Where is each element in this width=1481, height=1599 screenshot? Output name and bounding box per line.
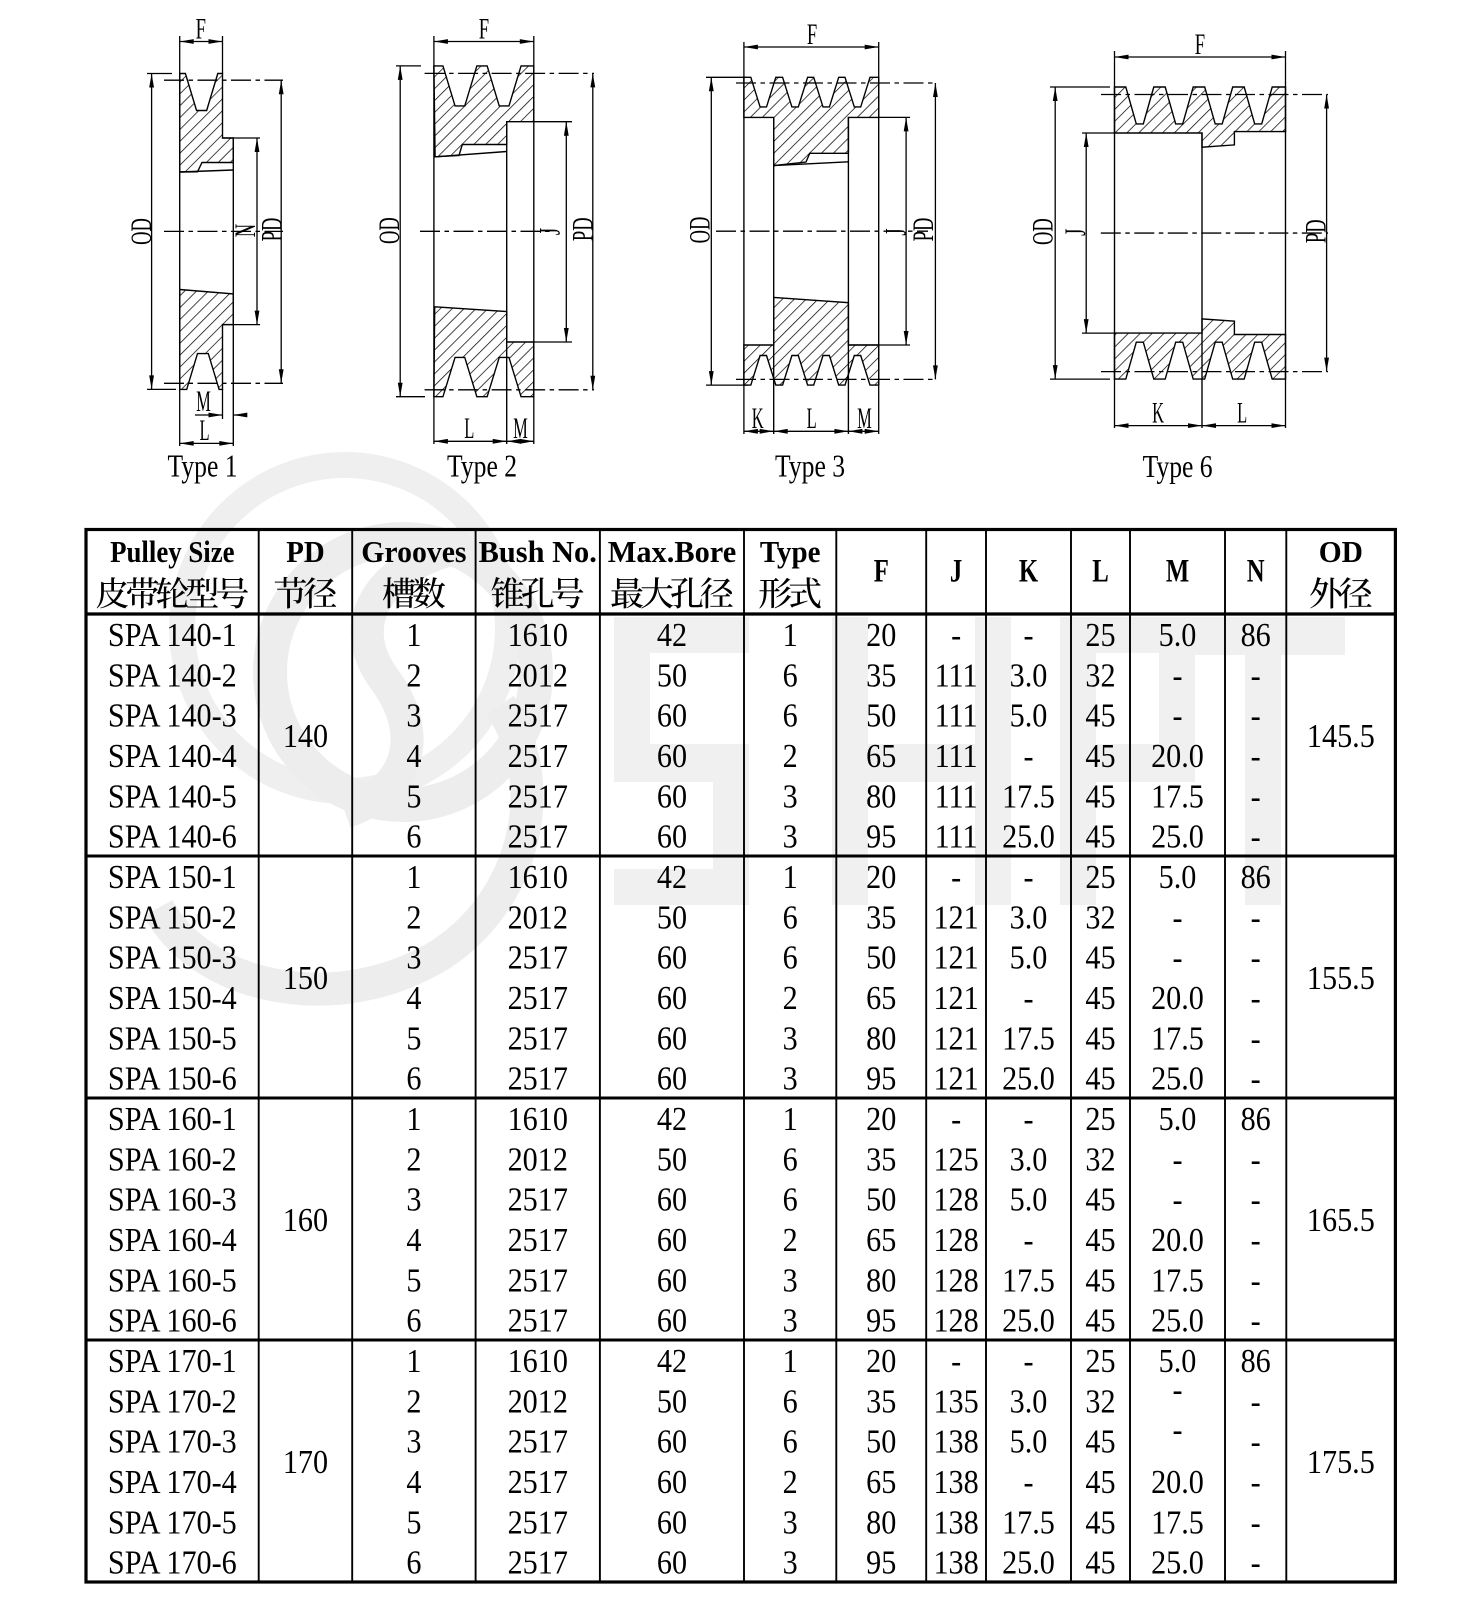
svg-text:-: -	[951, 857, 961, 895]
svg-text:SPA 150-6: SPA 150-6	[108, 1059, 237, 1097]
svg-text:5.0: 5.0	[1010, 1422, 1048, 1460]
svg-text:2517: 2517	[508, 1422, 568, 1460]
svg-text:OD: OD	[1319, 534, 1363, 569]
svg-text:Type: Type	[760, 535, 821, 569]
svg-text:4: 4	[406, 1462, 421, 1500]
svg-text:111: 111	[935, 817, 978, 855]
svg-text:2517: 2517	[508, 1019, 568, 1057]
svg-text:2517: 2517	[508, 696, 568, 734]
svg-text:PD: PD	[908, 218, 940, 242]
svg-text:-: -	[1172, 1140, 1182, 1178]
svg-text:Max.Bore: Max.Bore	[608, 535, 737, 569]
svg-text:4: 4	[406, 736, 421, 774]
svg-text:-: -	[1251, 1059, 1261, 1097]
svg-text:-: -	[1023, 1462, 1033, 1500]
svg-text:170: 170	[283, 1442, 328, 1480]
svg-text:17.5: 17.5	[1151, 1261, 1204, 1299]
svg-text:-: -	[1023, 978, 1033, 1016]
svg-text:-: -	[1023, 615, 1033, 653]
svg-text:3: 3	[406, 938, 421, 976]
svg-text:95: 95	[866, 1059, 896, 1097]
svg-text:5.0: 5.0	[1010, 696, 1048, 734]
svg-text:2012: 2012	[508, 1382, 568, 1420]
svg-text:-: -	[1251, 777, 1261, 815]
svg-text:32: 32	[1085, 1382, 1115, 1420]
svg-text:-: -	[1251, 696, 1261, 734]
svg-text:2517: 2517	[508, 1180, 568, 1218]
svg-text:35: 35	[866, 656, 896, 694]
svg-text:1: 1	[406, 615, 421, 653]
svg-text:-: -	[1251, 1462, 1261, 1500]
svg-text:-: -	[1251, 1180, 1261, 1218]
svg-text:2517: 2517	[508, 1462, 568, 1500]
svg-text:45: 45	[1085, 696, 1115, 734]
svg-text:-: -	[1251, 1301, 1261, 1339]
svg-text:80: 80	[866, 1019, 896, 1057]
svg-text:25.0: 25.0	[1151, 1301, 1204, 1339]
svg-text:SPA 140-4: SPA 140-4	[108, 736, 237, 774]
svg-text:3.0: 3.0	[1010, 1140, 1048, 1178]
svg-text:-: -	[951, 1341, 961, 1379]
svg-text:-: -	[1251, 898, 1261, 936]
svg-text:60: 60	[657, 1059, 687, 1097]
svg-text:3.0: 3.0	[1010, 898, 1048, 936]
svg-text:2517: 2517	[508, 777, 568, 815]
svg-text:3: 3	[783, 1301, 798, 1339]
svg-text:K: K	[1152, 396, 1164, 429]
svg-text:150: 150	[283, 958, 328, 996]
svg-text:138: 138	[933, 1422, 978, 1460]
svg-text:35: 35	[866, 1382, 896, 1420]
svg-text:86: 86	[1241, 1099, 1271, 1137]
svg-text:OD: OD	[684, 217, 716, 244]
svg-text:-: -	[1251, 656, 1261, 694]
svg-text:3: 3	[406, 696, 421, 734]
svg-text:3: 3	[783, 1059, 798, 1097]
svg-text:SPA 170-2: SPA 170-2	[108, 1382, 237, 1420]
svg-text:2517: 2517	[508, 1059, 568, 1097]
svg-text:175.5: 175.5	[1307, 1442, 1375, 1480]
svg-text:3: 3	[783, 1261, 798, 1299]
svg-text:1: 1	[406, 1099, 421, 1137]
svg-text:1610: 1610	[508, 1341, 568, 1379]
svg-text:SPA 160-2: SPA 160-2	[108, 1140, 237, 1178]
svg-text:6: 6	[783, 938, 798, 976]
svg-text:1: 1	[406, 857, 421, 895]
svg-text:45: 45	[1085, 777, 1115, 815]
svg-text:60: 60	[657, 1422, 687, 1460]
svg-text:3: 3	[783, 1543, 798, 1581]
svg-text:95: 95	[866, 1543, 896, 1581]
svg-text:M: M	[1166, 553, 1189, 589]
svg-text:1: 1	[783, 615, 798, 653]
svg-text:5.0: 5.0	[1159, 1099, 1197, 1137]
svg-text:50: 50	[866, 938, 896, 976]
svg-text:25.0: 25.0	[1002, 1543, 1055, 1581]
svg-text:-: -	[1172, 656, 1182, 694]
svg-text:3: 3	[783, 1019, 798, 1057]
svg-text:-: -	[1023, 1341, 1033, 1379]
svg-text:2517: 2517	[508, 736, 568, 774]
svg-text:1610: 1610	[508, 857, 568, 895]
svg-text:-: -	[1172, 938, 1182, 976]
svg-text:OD: OD	[126, 218, 158, 245]
svg-text:80: 80	[866, 1503, 896, 1541]
svg-text:-: -	[1251, 1422, 1261, 1460]
svg-text:2517: 2517	[508, 1543, 568, 1581]
svg-text:128: 128	[933, 1301, 978, 1339]
svg-text:6: 6	[406, 817, 421, 855]
svg-text:60: 60	[657, 1220, 687, 1258]
svg-text:3: 3	[406, 1422, 421, 1460]
svg-text:25.0: 25.0	[1002, 1301, 1055, 1339]
svg-text:SPA 170-1: SPA 170-1	[108, 1341, 237, 1379]
svg-text:2: 2	[406, 898, 421, 936]
svg-text:SPA 150-5: SPA 150-5	[108, 1019, 237, 1057]
svg-text:125: 125	[933, 1140, 978, 1178]
svg-text:SPA 140-1: SPA 140-1	[108, 615, 237, 653]
svg-text:2: 2	[406, 1382, 421, 1420]
svg-text:Bush No.: Bush No.	[479, 535, 597, 569]
svg-text:2517: 2517	[508, 1503, 568, 1541]
svg-text:145.5: 145.5	[1307, 716, 1375, 754]
svg-text:45: 45	[1085, 817, 1115, 855]
svg-text:SPA 170-5: SPA 170-5	[108, 1503, 237, 1541]
svg-text:80: 80	[866, 1261, 896, 1299]
svg-text:J: J	[1060, 228, 1092, 235]
svg-text:SPA 160-5: SPA 160-5	[108, 1261, 237, 1299]
svg-text:6: 6	[783, 1180, 798, 1218]
svg-text:20: 20	[866, 1099, 896, 1137]
svg-text:-: -	[1251, 1382, 1261, 1420]
svg-text:60: 60	[657, 736, 687, 774]
svg-text:6: 6	[783, 1422, 798, 1460]
svg-text:17.5: 17.5	[1151, 1503, 1204, 1541]
svg-text:50: 50	[866, 1422, 896, 1460]
svg-text:SPA 150-1: SPA 150-1	[108, 857, 237, 895]
svg-text:Grooves: Grooves	[361, 534, 466, 569]
svg-text:5: 5	[406, 1019, 421, 1057]
svg-text:F: F	[807, 19, 817, 51]
svg-text:2: 2	[783, 978, 798, 1016]
svg-text:42: 42	[657, 615, 687, 653]
svg-text:50: 50	[657, 1382, 687, 1420]
svg-text:45: 45	[1085, 1301, 1115, 1339]
svg-text:35: 35	[866, 1140, 896, 1178]
svg-text:SPA 170-6: SPA 170-6	[108, 1543, 237, 1581]
svg-text:2: 2	[406, 656, 421, 694]
svg-text:25: 25	[1085, 615, 1115, 653]
svg-text:86: 86	[1241, 857, 1271, 895]
svg-text:SPA 160-3: SPA 160-3	[108, 1180, 237, 1218]
svg-text:2012: 2012	[508, 1140, 568, 1178]
svg-text:4: 4	[406, 978, 421, 1016]
svg-text:17.5: 17.5	[1002, 1261, 1055, 1299]
svg-text:SPA 140-6: SPA 140-6	[108, 817, 237, 855]
svg-text:PD: PD	[256, 218, 288, 242]
svg-text:45: 45	[1085, 1503, 1115, 1541]
svg-text:3: 3	[406, 1180, 421, 1218]
svg-text:N: N	[1247, 553, 1265, 589]
svg-text:25.0: 25.0	[1151, 1543, 1204, 1581]
svg-text:60: 60	[657, 938, 687, 976]
svg-text:3: 3	[783, 1503, 798, 1541]
svg-text:J: J	[950, 553, 962, 589]
svg-text:155.5: 155.5	[1307, 958, 1375, 996]
svg-text:4: 4	[406, 1220, 421, 1258]
svg-text:1: 1	[406, 1341, 421, 1379]
svg-text:L: L	[199, 414, 209, 447]
svg-text:135: 135	[933, 1382, 978, 1420]
svg-text:Type 1: Type 1	[168, 448, 238, 484]
svg-text:Type 6: Type 6	[1143, 448, 1213, 484]
svg-text:128: 128	[933, 1261, 978, 1299]
svg-text:45: 45	[1085, 1422, 1115, 1460]
svg-text:-: -	[951, 615, 961, 653]
svg-text:6: 6	[783, 656, 798, 694]
svg-text:2012: 2012	[508, 898, 568, 936]
svg-text:-: -	[951, 1099, 961, 1137]
svg-text:20.0: 20.0	[1151, 978, 1204, 1016]
svg-text:45: 45	[1085, 1220, 1115, 1258]
svg-text:50: 50	[657, 1140, 687, 1178]
svg-text:-: -	[1023, 1220, 1033, 1258]
svg-text:17.5: 17.5	[1002, 1019, 1055, 1057]
svg-text:138: 138	[933, 1462, 978, 1500]
svg-text:20.0: 20.0	[1151, 736, 1204, 774]
svg-text:3: 3	[783, 817, 798, 855]
svg-text:2517: 2517	[508, 1220, 568, 1258]
svg-text:OD: OD	[374, 217, 406, 244]
svg-text:5.0: 5.0	[1159, 615, 1197, 653]
svg-text:M: M	[513, 412, 528, 445]
svg-text:F: F	[479, 13, 489, 45]
svg-text:-: -	[1251, 1220, 1261, 1258]
svg-text:128: 128	[933, 1220, 978, 1258]
svg-text:60: 60	[657, 1503, 687, 1541]
svg-text:6: 6	[783, 1140, 798, 1178]
svg-text:60: 60	[657, 777, 687, 815]
svg-text:K: K	[752, 402, 764, 435]
svg-text:K: K	[1019, 553, 1039, 589]
svg-text:2517: 2517	[508, 1261, 568, 1299]
svg-text:25: 25	[1085, 857, 1115, 895]
svg-text:6: 6	[783, 898, 798, 936]
svg-text:45: 45	[1085, 736, 1115, 774]
svg-text:-: -	[1172, 898, 1182, 936]
svg-text:42: 42	[657, 1341, 687, 1379]
svg-text:SPA 160-1: SPA 160-1	[108, 1099, 237, 1137]
svg-text:140: 140	[283, 716, 328, 754]
svg-text:F: F	[196, 13, 206, 45]
svg-text:121: 121	[933, 938, 978, 976]
svg-text:17.5: 17.5	[1002, 777, 1055, 815]
svg-text:17.5: 17.5	[1151, 1019, 1204, 1057]
svg-text:121: 121	[933, 978, 978, 1016]
svg-text:35: 35	[866, 898, 896, 936]
svg-text:45: 45	[1085, 978, 1115, 1016]
svg-text:111: 111	[935, 656, 978, 694]
svg-text:32: 32	[1085, 1140, 1115, 1178]
svg-text:3.0: 3.0	[1010, 656, 1048, 694]
svg-text:5.0: 5.0	[1010, 938, 1048, 976]
svg-text:2: 2	[783, 736, 798, 774]
svg-text:6: 6	[406, 1543, 421, 1581]
svg-text:17.5: 17.5	[1151, 777, 1204, 815]
svg-text:1: 1	[783, 1099, 798, 1137]
svg-text:SPA 170-3: SPA 170-3	[108, 1422, 237, 1460]
svg-text:45: 45	[1085, 1261, 1115, 1299]
svg-text:25.0: 25.0	[1002, 817, 1055, 855]
svg-text:J: J	[534, 228, 566, 235]
svg-text:2517: 2517	[508, 1301, 568, 1339]
svg-text:45: 45	[1085, 1543, 1115, 1581]
svg-text:PD: PD	[567, 217, 599, 241]
svg-text:2: 2	[783, 1462, 798, 1500]
svg-text:45: 45	[1085, 938, 1115, 976]
svg-text:PD: PD	[286, 535, 324, 569]
svg-text:F: F	[1195, 29, 1205, 61]
svg-text:80: 80	[866, 777, 896, 815]
svg-text:45: 45	[1085, 1059, 1115, 1097]
svg-text:50: 50	[866, 696, 896, 734]
svg-text:138: 138	[933, 1543, 978, 1581]
svg-text:Type 2: Type 2	[447, 448, 517, 484]
svg-text:32: 32	[1085, 898, 1115, 936]
svg-text:20: 20	[866, 1341, 896, 1379]
svg-text:Type 3: Type 3	[775, 448, 845, 484]
svg-text:SPA 160-4: SPA 160-4	[108, 1220, 237, 1258]
svg-text:-: -	[1023, 1099, 1033, 1137]
svg-text:1: 1	[783, 1341, 798, 1379]
svg-text:1610: 1610	[508, 1099, 568, 1137]
svg-text:6: 6	[783, 1382, 798, 1420]
svg-text:SPA 150-3: SPA 150-3	[108, 938, 237, 976]
svg-text:1610: 1610	[508, 615, 568, 653]
svg-text:95: 95	[866, 1301, 896, 1339]
svg-text:111: 111	[935, 696, 978, 734]
svg-text:PD: PD	[1300, 219, 1332, 243]
svg-text:65: 65	[866, 1220, 896, 1258]
svg-text:L: L	[464, 412, 474, 445]
svg-text:25.0: 25.0	[1151, 817, 1204, 855]
svg-text:25: 25	[1085, 1099, 1115, 1137]
svg-text:5.0: 5.0	[1010, 1180, 1048, 1218]
svg-text:5: 5	[406, 1261, 421, 1299]
svg-text:121: 121	[933, 1019, 978, 1057]
svg-text:111: 111	[935, 777, 978, 815]
svg-text:SPA 140-3: SPA 140-3	[108, 696, 237, 734]
svg-text:45: 45	[1085, 1462, 1115, 1500]
svg-text:5.0: 5.0	[1159, 857, 1197, 895]
svg-text:95: 95	[866, 817, 896, 855]
svg-text:6: 6	[406, 1059, 421, 1097]
svg-text:SPA 170-4: SPA 170-4	[108, 1462, 237, 1500]
svg-text:60: 60	[657, 696, 687, 734]
svg-text:20: 20	[866, 857, 896, 895]
svg-text:-: -	[1251, 978, 1261, 1016]
svg-text:42: 42	[657, 857, 687, 895]
svg-text:25.0: 25.0	[1151, 1059, 1204, 1097]
svg-text:2517: 2517	[508, 817, 568, 855]
svg-text:45: 45	[1085, 1180, 1115, 1218]
svg-text:165.5: 165.5	[1307, 1200, 1375, 1238]
svg-text:50: 50	[657, 898, 687, 936]
svg-text:6: 6	[783, 696, 798, 734]
svg-text:-: -	[1251, 1140, 1261, 1178]
svg-text:50: 50	[866, 1180, 896, 1218]
svg-text:-: -	[1172, 696, 1182, 734]
svg-text:17.5: 17.5	[1002, 1503, 1055, 1541]
svg-text:65: 65	[866, 736, 896, 774]
svg-text:OD: OD	[1027, 218, 1059, 245]
svg-text:60: 60	[657, 1261, 687, 1299]
svg-text:2: 2	[406, 1140, 421, 1178]
svg-text:1: 1	[783, 857, 798, 895]
svg-text:32: 32	[1085, 656, 1115, 694]
svg-text:160: 160	[283, 1200, 328, 1238]
svg-text:20.0: 20.0	[1151, 1220, 1204, 1258]
svg-text:2012: 2012	[508, 656, 568, 694]
svg-text:L: L	[1092, 553, 1109, 589]
svg-text:SPA 140-2: SPA 140-2	[108, 656, 237, 694]
svg-text:-: -	[1172, 1410, 1182, 1448]
svg-text:-: -	[1023, 736, 1033, 774]
svg-text:-: -	[1251, 1543, 1261, 1581]
svg-text:60: 60	[657, 1180, 687, 1218]
svg-text:111: 111	[935, 736, 978, 774]
svg-text:-: -	[1172, 1180, 1182, 1218]
svg-text:-: -	[1251, 1019, 1261, 1057]
svg-text:60: 60	[657, 978, 687, 1016]
svg-text:3.0: 3.0	[1010, 1382, 1048, 1420]
svg-text:-: -	[1251, 938, 1261, 976]
svg-text:-: -	[1251, 736, 1261, 774]
svg-text:2517: 2517	[508, 978, 568, 1016]
svg-text:121: 121	[933, 1059, 978, 1097]
svg-text:60: 60	[657, 1301, 687, 1339]
svg-text:25: 25	[1085, 1341, 1115, 1379]
svg-text:86: 86	[1241, 1341, 1271, 1379]
svg-text:60: 60	[657, 1019, 687, 1057]
svg-text:128: 128	[933, 1180, 978, 1218]
svg-text:45: 45	[1085, 1019, 1115, 1057]
svg-text:F: F	[874, 553, 889, 589]
svg-text:SPA 150-2: SPA 150-2	[108, 898, 237, 936]
svg-text:65: 65	[866, 978, 896, 1016]
svg-text:60: 60	[657, 1462, 687, 1500]
svg-text:5: 5	[406, 777, 421, 815]
svg-text:121: 121	[933, 898, 978, 936]
svg-text:Pulley Size: Pulley Size	[110, 535, 235, 569]
svg-text:138: 138	[933, 1503, 978, 1541]
svg-text:2517: 2517	[508, 938, 568, 976]
svg-text:60: 60	[657, 817, 687, 855]
svg-text:86: 86	[1241, 615, 1271, 653]
svg-text:L: L	[807, 402, 817, 435]
svg-text:20: 20	[866, 615, 896, 653]
svg-text:6: 6	[406, 1301, 421, 1339]
svg-text:M: M	[857, 402, 872, 435]
svg-text:25.0: 25.0	[1002, 1059, 1055, 1097]
svg-text:60: 60	[657, 1543, 687, 1581]
svg-text:-: -	[1251, 817, 1261, 855]
svg-text:-: -	[1251, 1261, 1261, 1299]
svg-text:SPA 140-5: SPA 140-5	[108, 777, 237, 815]
svg-text:-: -	[1023, 857, 1033, 895]
svg-text:20.0: 20.0	[1151, 1462, 1204, 1500]
svg-text:-: -	[1251, 1503, 1261, 1541]
